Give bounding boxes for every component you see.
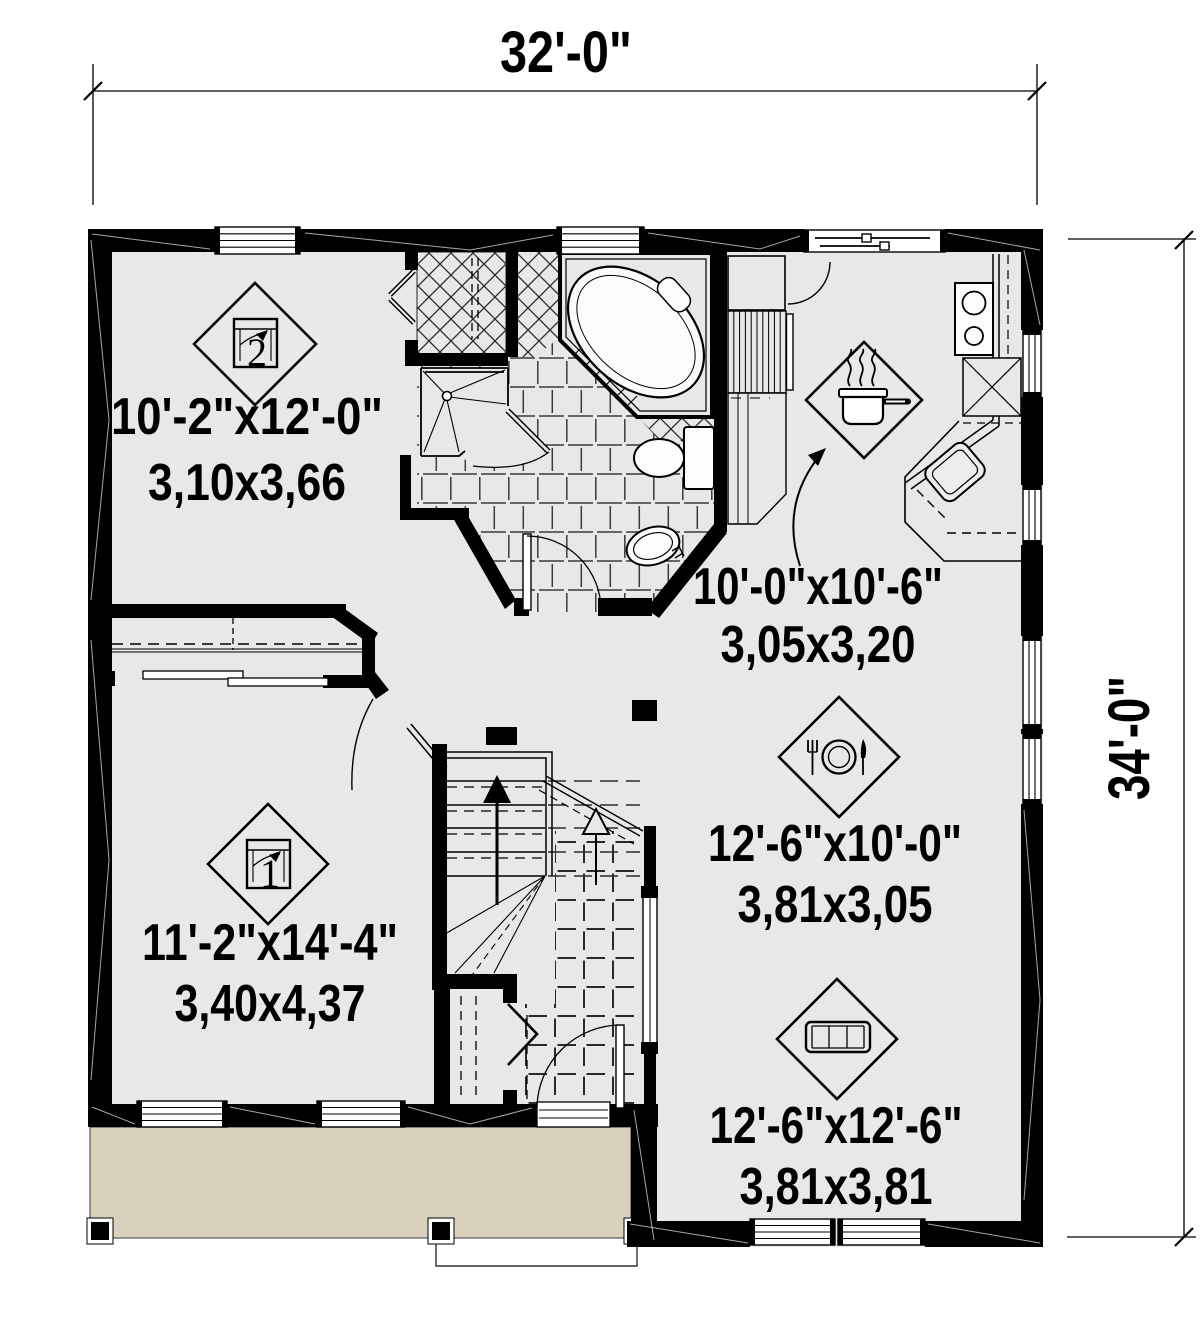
svg-text:10'-2"x12'-0": 10'-2"x12'-0" [111,388,383,446]
svg-text:3,81x3,81: 3,81x3,81 [740,1158,933,1216]
svg-text:3,40x4,37: 3,40x4,37 [175,975,366,1033]
svg-text:3,81x3,05: 3,81x3,05 [738,876,933,934]
svg-text:1: 1 [260,851,280,896]
svg-text:12'-6"x10'-0": 12'-6"x10'-0" [708,815,962,873]
svg-text:3,05x3,20: 3,05x3,20 [721,616,916,674]
svg-text:11'-2"x14'-4": 11'-2"x14'-4" [142,914,398,972]
svg-text:12'-6"x12'-6": 12'-6"x12'-6" [710,1097,963,1155]
svg-text:34'-0": 34'-0" [1097,676,1162,800]
svg-text:2: 2 [247,330,267,375]
svg-text:3,10x3,66: 3,10x3,66 [148,454,346,512]
svg-text:32'-0": 32'-0" [500,20,632,85]
svg-text:10'-0"x10'-6": 10'-0"x10'-6" [693,558,943,616]
